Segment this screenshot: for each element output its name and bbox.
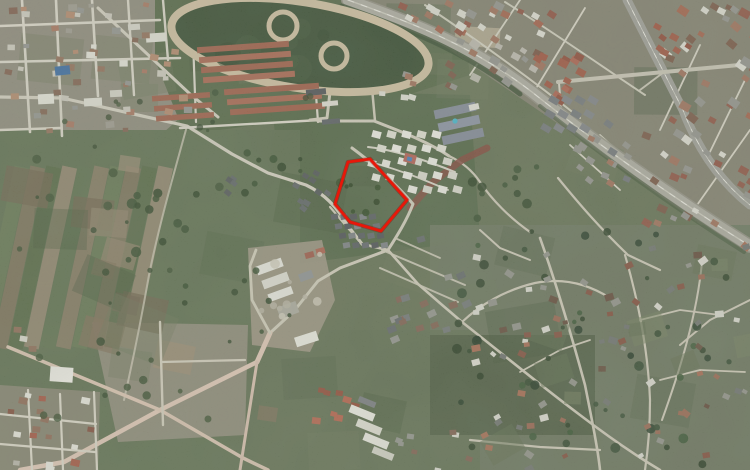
satellite-image	[0, 0, 750, 470]
satellite-map	[0, 0, 750, 470]
terrain-layers	[0, 0, 750, 470]
